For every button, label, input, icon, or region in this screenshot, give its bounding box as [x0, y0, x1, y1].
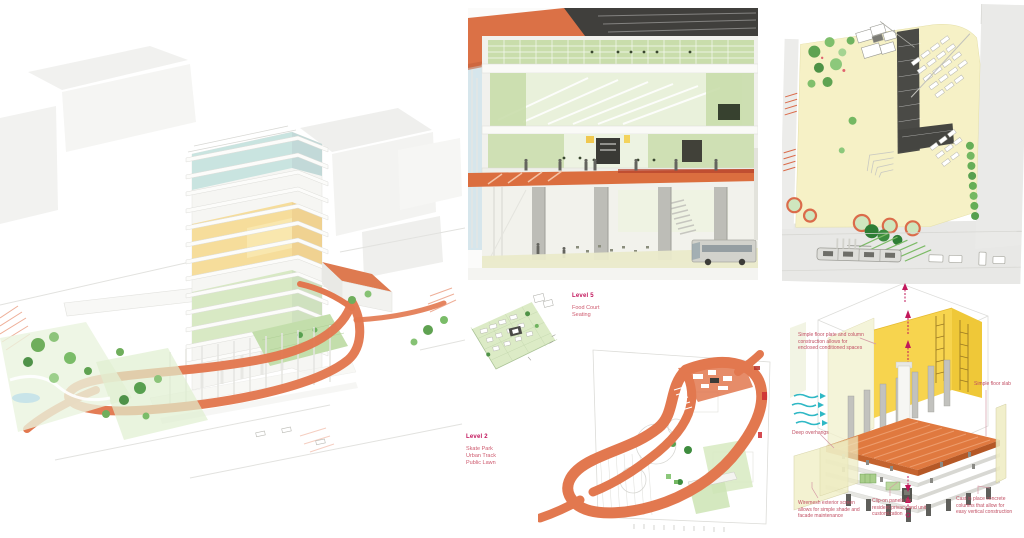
construction-diagram-panel: Simple floor plate and column constructi…	[790, 278, 1024, 538]
level2-label: Level 2 Skate Park Urban Track Public La…	[466, 434, 496, 467]
annotation-deep-overhangs: Deep overhangs	[792, 430, 834, 437]
ventilation-arrows	[792, 393, 828, 426]
level2-item: Urban Track	[466, 453, 496, 460]
presentation-board: Level 5 Food Court Seating	[0, 0, 1024, 538]
bus	[692, 240, 756, 265]
level5-item: Seating	[572, 312, 600, 319]
level2-plan-drawing	[538, 332, 793, 538]
annotation-wiremesh: Wiremesh exterior screen allows for simp…	[798, 500, 864, 520]
site-plan-panel	[782, 2, 1024, 284]
site-plan-drawing	[782, 2, 1024, 284]
ceiling-band	[564, 8, 758, 40]
pedestrian-bridge	[64, 288, 199, 316]
hero-axon-rendering	[0, 0, 465, 538]
level2-item: Public Lawn	[466, 460, 496, 467]
level5-item: Food Court	[572, 305, 600, 312]
annotation-clip-on: Clip-on panels for resident privacy and …	[872, 498, 930, 518]
level2-plan-panel	[538, 332, 793, 538]
level2-title: Level 2	[466, 434, 496, 440]
section-rendering	[468, 8, 758, 280]
hero-axon-panel	[0, 0, 465, 538]
sky-strip	[468, 38, 483, 250]
level2-item: Skate Park	[466, 446, 496, 453]
level5-label: Level 5 Food Court Seating	[572, 293, 600, 319]
annotation-floor-plate: Simple floor plate and column constructi…	[798, 332, 864, 352]
street-right	[975, 4, 1024, 250]
mid-floor	[488, 134, 754, 168]
annotation-floor-slab: Simple floor slab	[974, 381, 1020, 388]
street-vehicles	[256, 427, 326, 445]
section-panel	[468, 8, 758, 280]
level5-title: Level 5	[572, 293, 600, 299]
bottom-ticks	[634, 524, 724, 532]
green-grid-wall-top	[488, 40, 754, 64]
annotation-cast-columns: Cast in place concrete columns that allo…	[956, 496, 1016, 516]
upper-hall	[490, 73, 754, 126]
